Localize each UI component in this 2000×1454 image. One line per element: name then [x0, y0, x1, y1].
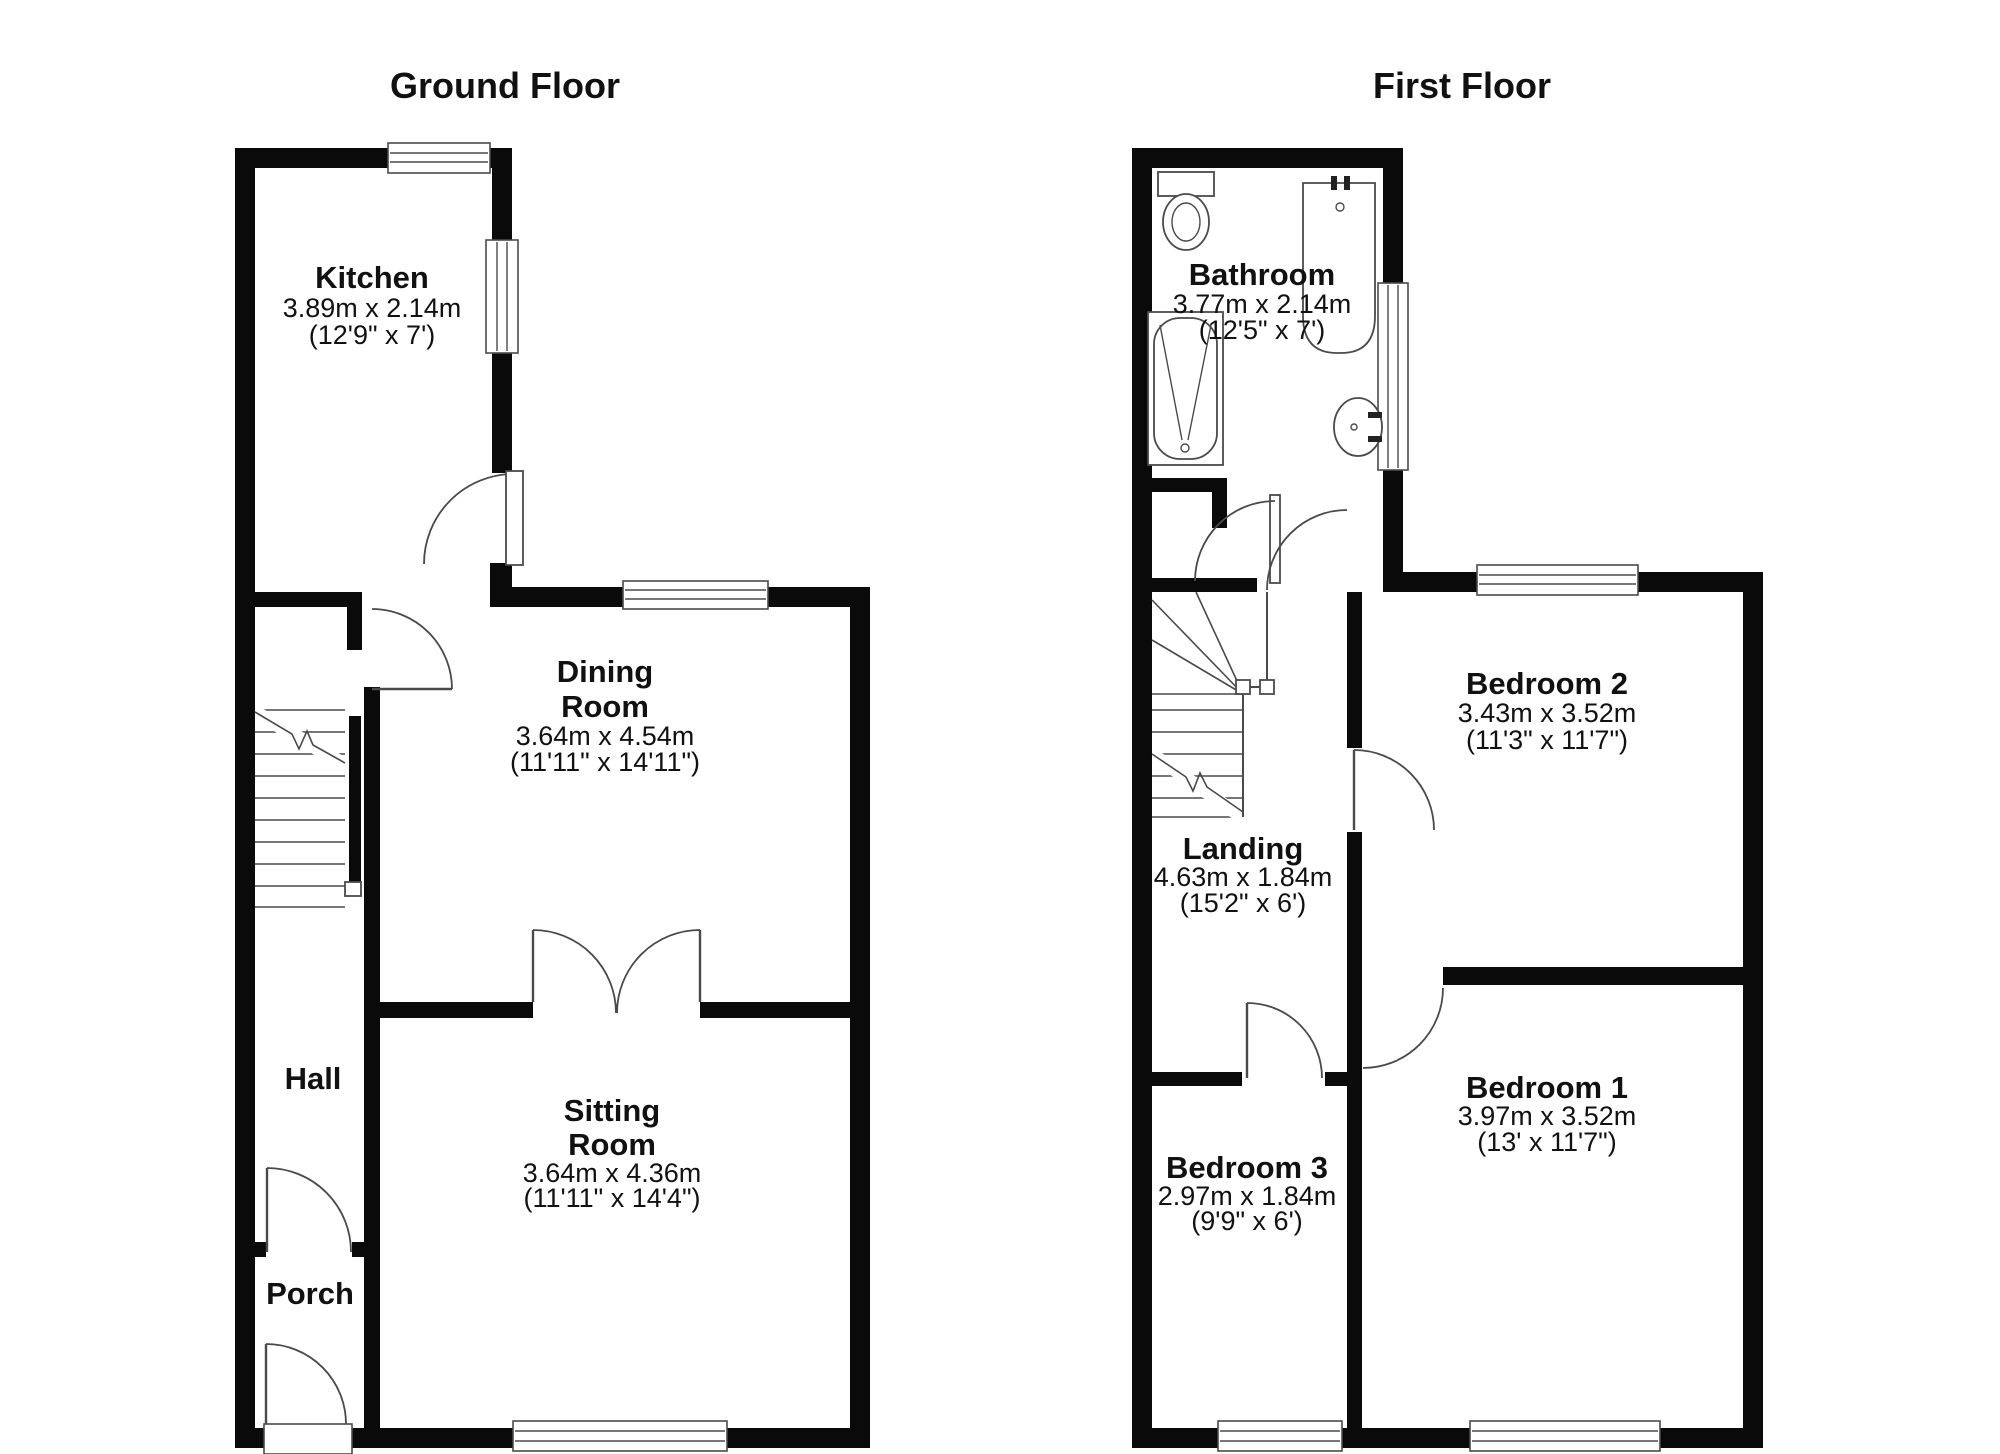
bedroom2-dim-metric: 3.43m x 3.52m	[1458, 698, 1637, 728]
hall-label: Hall	[285, 1061, 342, 1096]
ground-floor-plan: Ground Floor Kitchen 3.89m x 2.14m (12'9…	[235, 65, 870, 1454]
kitchen-top-window	[388, 143, 490, 173]
sitting-dim-imperial: (11'11" x 14'4")	[523, 1183, 700, 1213]
dining-label-line1: Dining	[557, 654, 653, 689]
newel-post	[1236, 680, 1250, 694]
kitchen-dim-imperial: (12'9" x 7')	[309, 320, 435, 350]
kitchen-side-window	[486, 240, 518, 353]
hall-porch-door	[267, 1168, 351, 1252]
sitting-label-line1: Sitting	[564, 1093, 660, 1128]
bedroom2-window	[1477, 565, 1638, 595]
first-floor-stairs	[1152, 592, 1274, 826]
sitting-label-line2: Room	[568, 1127, 656, 1162]
bathroom-window	[1378, 283, 1408, 470]
kitchen-dim-metric: 3.89m x 2.14m	[283, 293, 462, 323]
floorplan-page: Ground Floor Kitchen 3.89m x 2.14m (12'9…	[0, 0, 2000, 1454]
bedroom2-dim-imperial: (11'3" x 11'7")	[1466, 725, 1628, 755]
ground-floor-windows	[388, 143, 768, 1451]
dining-window	[623, 581, 768, 609]
front-door	[264, 1344, 352, 1454]
floor-plan-svg: Ground Floor Kitchen 3.89m x 2.14m (12'9…	[0, 0, 2000, 1454]
first-floor-plan: First Floor Bathroom 3.77m x 2.14m (12'5…	[1132, 65, 1763, 1451]
dining-dim-imperial: (11'11" x 14'11")	[510, 747, 700, 777]
first-floor-title: First Floor	[1373, 65, 1551, 106]
bedroom1-dim-imperial: (13' x 11'7")	[1477, 1127, 1616, 1157]
bathroom-label: Bathroom	[1189, 257, 1335, 292]
porch-label: Porch	[266, 1276, 354, 1311]
landing-dim-imperial: (15'2" x 6')	[1180, 888, 1306, 918]
ground-floor-stairs	[255, 704, 361, 907]
newel-post	[345, 882, 361, 896]
dining-label-line2: Room	[561, 689, 649, 724]
bedroom3-label: Bedroom 3	[1166, 1150, 1328, 1185]
newel-post	[1260, 680, 1274, 694]
ground-floor-labels: Ground Floor Kitchen 3.89m x 2.14m (12'9…	[266, 65, 701, 1311]
sitting-window	[513, 1421, 727, 1451]
bedroom1-window	[1470, 1421, 1660, 1451]
basin-icon	[1334, 398, 1382, 456]
bedroom3-window	[1218, 1421, 1342, 1451]
bedroom3-door	[1247, 1003, 1322, 1078]
landing-label: Landing	[1183, 831, 1304, 866]
bedroom2-label: Bedroom 2	[1466, 666, 1628, 701]
bathroom-dim-imperial: (12'5" x 7')	[1199, 315, 1325, 345]
toilet-icon	[1158, 172, 1214, 250]
ground-floor-title: Ground Floor	[390, 65, 620, 106]
bedroom1-label: Bedroom 1	[1466, 1070, 1628, 1105]
bedroom1-door	[1363, 988, 1443, 1068]
kitchen-door	[424, 471, 523, 565]
hall-dining-door	[372, 609, 452, 689]
stair-rail-wall	[349, 716, 361, 882]
kitchen-label: Kitchen	[315, 260, 429, 295]
bedroom3-dim-imperial: (9'9" x 6')	[1191, 1206, 1302, 1236]
bedroom2-door	[1354, 750, 1434, 830]
sitting-double-doors	[533, 930, 700, 1013]
stair-top-door	[1195, 495, 1280, 583]
